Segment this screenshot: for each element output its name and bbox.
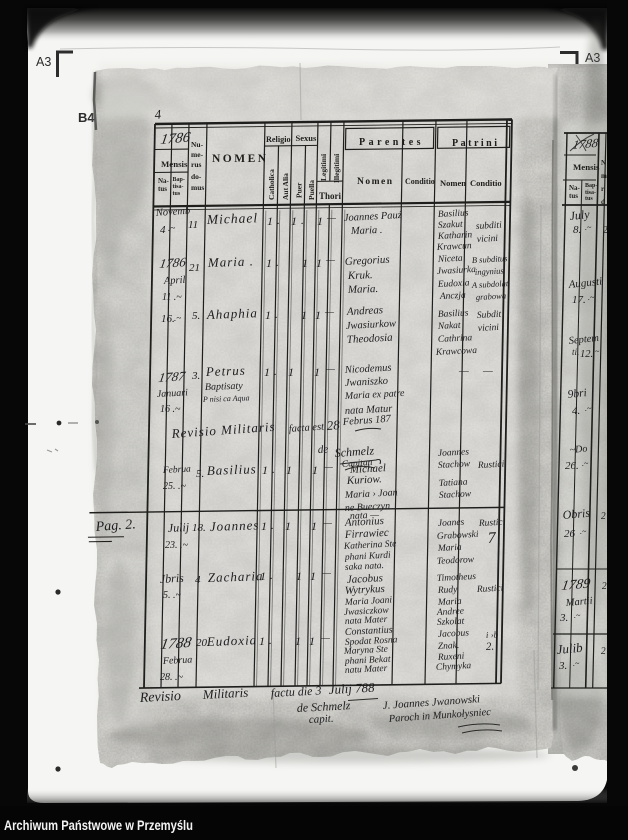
- svg-text:Baptisaty: Baptisaty: [205, 381, 244, 393]
- svg-text:1787: 1787: [158, 368, 188, 385]
- svg-text:m: m: [601, 172, 607, 180]
- svg-text:r: r: [601, 185, 604, 193]
- svg-text:11 .~: 11 .~: [162, 292, 182, 303]
- svg-text:Nakat: Nakat: [437, 321, 462, 332]
- svg-text:Bap-: Bap-: [585, 183, 597, 189]
- svg-text:Na-: Na-: [158, 177, 170, 185]
- svg-text:1788: 1788: [159, 634, 193, 653]
- svg-text:~Do: ~Do: [569, 443, 588, 455]
- svg-text:Mensis: Mensis: [573, 162, 600, 172]
- svg-text:Thori: Thori: [319, 191, 342, 201]
- svg-text:8.: 8.: [573, 224, 581, 236]
- svg-text:Julij 788: Julij 788: [328, 680, 375, 697]
- svg-text:me-: me-: [191, 150, 204, 159]
- svg-text:23. .~: 23. .~: [165, 540, 189, 551]
- svg-text:.~: .~: [582, 459, 589, 468]
- svg-text:—: —: [322, 518, 332, 529]
- svg-text:.~: .~: [174, 313, 181, 323]
- svg-text:i ›b: i ›b: [486, 629, 499, 640]
- svg-text:1: 1: [317, 214, 323, 228]
- svg-text:tus: tus: [585, 196, 593, 202]
- svg-text:Militaris: Militaris: [201, 685, 248, 702]
- svg-text:Rustici: Rustici: [478, 518, 506, 529]
- svg-text:1: 1: [288, 365, 294, 379]
- svg-text:Jwaniszko: Jwaniszko: [345, 376, 389, 389]
- svg-text:16.: 16.: [161, 313, 175, 325]
- svg-text:Maria: Maria: [437, 543, 462, 554]
- svg-text:1: 1: [259, 634, 265, 648]
- svg-text:5.: 5.: [192, 310, 200, 322]
- svg-text:Jwasiurka: Jwasiurka: [437, 265, 477, 277]
- svg-text:April: April: [163, 275, 186, 287]
- svg-text:de: de: [318, 443, 329, 456]
- svg-text:Bap-: Bap-: [173, 177, 185, 183]
- svg-text:Basilius: Basilius: [438, 208, 469, 220]
- svg-text:26: 26: [564, 528, 576, 540]
- svg-text:—: —: [321, 568, 331, 579]
- svg-text:Puella: Puella: [307, 180, 316, 200]
- svg-text:.: .: [276, 257, 279, 269]
- svg-text:Catholica: Catholica: [267, 169, 276, 200]
- svg-text:Julib: Julib: [556, 640, 584, 657]
- svg-text:Religio: Religio: [266, 135, 291, 144]
- svg-text:Gregorius: Gregorius: [345, 254, 390, 268]
- svg-text:1: 1: [264, 365, 270, 379]
- svg-text:Cathrina: Cathrina: [438, 333, 473, 345]
- svg-text:do-: do-: [191, 172, 202, 181]
- svg-text:Firrawiec: Firrawiec: [344, 527, 390, 541]
- svg-text:subditi: subditi: [476, 221, 503, 232]
- svg-text:Wytrykus: Wytrykus: [345, 583, 385, 597]
- svg-text:1: 1: [266, 256, 272, 270]
- svg-text:—: —: [482, 365, 493, 377]
- svg-text:Joannes: Joannes: [438, 447, 470, 459]
- svg-text:2.: 2.: [486, 641, 495, 653]
- svg-text:1: 1: [316, 256, 322, 270]
- svg-text:Ahaphia: Ahaphia: [206, 305, 259, 322]
- svg-text:Nu-: Nu-: [191, 140, 204, 149]
- svg-text:1: 1: [295, 634, 301, 648]
- svg-text:4: 4: [195, 574, 201, 586]
- svg-text:A3: A3: [36, 55, 51, 69]
- svg-text:Kuriow.: Kuriow.: [346, 473, 383, 487]
- svg-text:1: 1: [314, 365, 320, 379]
- svg-text:tus: tus: [158, 185, 167, 193]
- svg-text:1: 1: [265, 308, 271, 322]
- svg-text:Archiwum Państwowe w Przemyślu: Archiwum Państwowe w Przemyślu: [4, 817, 193, 833]
- svg-text:Februa: Februa: [162, 465, 192, 477]
- svg-text:Mensis: Mensis: [161, 159, 188, 169]
- svg-text:.~: .~: [593, 347, 600, 356]
- svg-text:16 .~: 16 .~: [160, 404, 181, 415]
- svg-text:Nomen: Nomen: [440, 178, 466, 188]
- svg-text:Obris: Obris: [562, 506, 591, 522]
- svg-text:3.: 3.: [558, 660, 567, 672]
- svg-text:3.: 3.: [191, 370, 200, 382]
- svg-text:1: 1: [291, 214, 297, 228]
- svg-text:Maria.: Maria.: [347, 283, 379, 296]
- svg-text:Subdit: Subdit: [477, 310, 502, 321]
- svg-text:Michael: Michael: [206, 210, 259, 227]
- svg-text:1789: 1789: [560, 576, 591, 594]
- svg-text:A subdolat: A subdolat: [471, 278, 510, 290]
- svg-text:25. .~: 25. .~: [163, 481, 187, 492]
- svg-text:Petrus: Petrus: [205, 363, 246, 379]
- svg-text:Julij: Julij: [167, 520, 190, 535]
- svg-text:mus: mus: [191, 183, 204, 192]
- svg-text:3.: 3.: [559, 612, 568, 624]
- svg-text:5.: 5.: [196, 468, 204, 480]
- svg-text:.: .: [271, 520, 274, 532]
- svg-text:grabowa: grabowa: [476, 290, 507, 302]
- svg-text:.~: .~: [585, 404, 592, 413]
- svg-text:.: .: [274, 366, 277, 378]
- svg-text:Jbris: Jbris: [159, 571, 184, 586]
- svg-text:Rustici: Rustici: [477, 460, 505, 471]
- svg-text:Februa: Februa: [162, 654, 193, 667]
- svg-text:.~: .~: [580, 527, 587, 536]
- svg-text:Parentes: Parentes: [359, 137, 424, 148]
- svg-text:1: 1: [315, 308, 321, 322]
- svg-text:tus: tus: [569, 192, 578, 200]
- svg-text:Conditio: Conditio: [470, 178, 502, 188]
- svg-text:Aut Alia: Aut Alia: [281, 173, 290, 200]
- svg-text:Pag. 2.: Pag. 2.: [94, 517, 136, 535]
- svg-text:Basilius: Basilius: [438, 308, 469, 320]
- svg-text:1: 1: [286, 463, 292, 477]
- svg-text:Anczja: Anczja: [439, 291, 467, 302]
- svg-text:Januari: Januari: [157, 387, 189, 400]
- svg-text:Sexus: Sexus: [296, 133, 317, 143]
- svg-text:12.: 12.: [580, 349, 593, 360]
- svg-text:Andreas: Andreas: [346, 304, 384, 318]
- svg-text:1: 1: [302, 256, 308, 270]
- svg-text:1: 1: [310, 569, 316, 583]
- svg-text:—: —: [326, 213, 336, 224]
- svg-text:Katharin: Katharin: [437, 230, 473, 242]
- svg-text:—: —: [325, 364, 335, 375]
- svg-text:d: d: [601, 198, 605, 206]
- svg-text:Joanes: Joanes: [438, 518, 465, 529]
- svg-text:Szakut: Szakut: [438, 220, 464, 231]
- svg-text:July: July: [569, 207, 591, 223]
- svg-text:vicini: vicini: [478, 323, 500, 334]
- svg-text:ti.: ti.: [572, 347, 579, 357]
- svg-text:.~: .~: [168, 223, 175, 233]
- svg-text:Timotheus: Timotheus: [437, 572, 477, 584]
- svg-text:.: .: [269, 635, 272, 647]
- svg-text:capit.: capit.: [309, 713, 334, 726]
- svg-text:Revisio: Revisio: [138, 689, 181, 706]
- svg-text:—: —: [324, 307, 334, 318]
- svg-text:2: 2: [600, 511, 606, 522]
- svg-text:Illegitimi: Illegitimi: [332, 154, 341, 183]
- svg-text:Basilius: Basilius: [207, 461, 257, 478]
- svg-text:9bri: 9bri: [567, 387, 587, 401]
- svg-text:1786: 1786: [159, 130, 192, 148]
- svg-text:Tatiana: Tatiana: [439, 477, 468, 489]
- svg-text:factu die 3: factu die 3: [270, 683, 321, 700]
- svg-text:Stachow: Stachow: [439, 489, 472, 501]
- svg-text:Jacobus: Jacobus: [438, 628, 470, 640]
- svg-text:B subditus: B subditus: [472, 253, 509, 265]
- svg-text:N: N: [601, 159, 606, 167]
- svg-text:11: 11: [188, 219, 198, 231]
- svg-text:Chymyka: Chymyka: [436, 661, 472, 673]
- svg-text:.~: .~: [588, 293, 595, 302]
- svg-text:tisa-: tisa-: [173, 184, 184, 190]
- svg-text:ingynius: ingynius: [475, 265, 505, 277]
- svg-text:NOMEN: NOMEN: [212, 153, 269, 165]
- svg-text:.~: .~: [574, 611, 581, 620]
- svg-text:Maria .: Maria .: [207, 253, 254, 270]
- svg-text:Maria .: Maria .: [350, 225, 383, 237]
- svg-text:—: —: [320, 633, 330, 644]
- svg-text:2: 2: [601, 581, 607, 592]
- svg-text:2: 2: [600, 646, 606, 657]
- svg-text:rus: rus: [191, 160, 202, 169]
- svg-text:—: —: [325, 255, 335, 266]
- svg-text:.~: .~: [585, 223, 592, 232]
- svg-text:tus: tus: [173, 191, 181, 197]
- svg-text:—: —: [323, 462, 333, 473]
- svg-text:Eudoxia: Eudoxia: [437, 278, 470, 290]
- svg-text:1: 1: [260, 569, 266, 583]
- svg-text:Joannes: Joannes: [210, 517, 260, 534]
- svg-text:.: .: [277, 215, 280, 227]
- svg-text:Theodosia: Theodosia: [347, 332, 394, 346]
- svg-text:saka nata.: saka nata.: [345, 561, 385, 573]
- svg-text:Znak.: Znak.: [438, 641, 460, 652]
- svg-text:21: 21: [189, 262, 200, 274]
- svg-text:1: 1: [261, 519, 267, 533]
- svg-text:1: 1: [309, 634, 315, 648]
- svg-text:1: 1: [285, 519, 291, 533]
- svg-text:1: 1: [301, 308, 307, 322]
- svg-text:vicini: vicini: [477, 234, 499, 245]
- svg-text:1: 1: [267, 214, 273, 228]
- svg-text:.: .: [272, 464, 275, 476]
- svg-text:1: 1: [311, 519, 317, 533]
- svg-text:Krawcun: Krawcun: [436, 241, 473, 253]
- svg-text:.~: .~: [573, 659, 580, 668]
- svg-text:Nomen: Nomen: [357, 177, 394, 187]
- svg-text:Szkolat: Szkolat: [437, 617, 465, 628]
- svg-text:Legitimi: Legitimi: [319, 154, 328, 181]
- svg-text:17.: 17.: [572, 294, 586, 306]
- svg-text:1786: 1786: [159, 254, 188, 271]
- svg-text:Teodorow: Teodorow: [437, 555, 475, 567]
- svg-text:—: —: [458, 365, 469, 377]
- svg-text:Na-: Na-: [569, 184, 581, 192]
- svg-text:Zacharia: Zacharia: [208, 568, 264, 585]
- svg-text:Rudy: Rudy: [437, 585, 459, 596]
- svg-text:26.: 26.: [565, 460, 579, 472]
- svg-text:1: 1: [312, 463, 318, 477]
- svg-text:Rustici: Rustici: [476, 584, 504, 595]
- svg-text:Puer: Puer: [295, 182, 304, 198]
- svg-text:5. .~: 5. .~: [163, 590, 182, 601]
- svg-text:Kruk.: Kruk.: [347, 269, 373, 282]
- svg-text:18.: 18.: [192, 522, 206, 534]
- svg-text:.: .: [270, 570, 273, 582]
- svg-text:Niceta: Niceta: [437, 254, 464, 265]
- svg-text:1: 1: [296, 569, 302, 583]
- svg-text:Patrini: Patrini: [452, 138, 500, 149]
- svg-text:Stachow: Stachow: [438, 459, 471, 471]
- svg-text:P nisi ca Aqua: P nisi ca Aqua: [202, 393, 250, 404]
- svg-text:4.: 4.: [572, 405, 580, 417]
- svg-text:Conditio: Conditio: [405, 177, 435, 186]
- svg-text:Eudoxia: Eudoxia: [206, 632, 258, 649]
- svg-text:.: .: [275, 309, 278, 321]
- svg-text:.: .: [301, 215, 304, 227]
- svg-text:4: 4: [160, 224, 166, 236]
- svg-text:28. .~: 28. .~: [160, 672, 184, 683]
- svg-text:1: 1: [262, 463, 268, 477]
- svg-text:28: 28: [326, 417, 341, 433]
